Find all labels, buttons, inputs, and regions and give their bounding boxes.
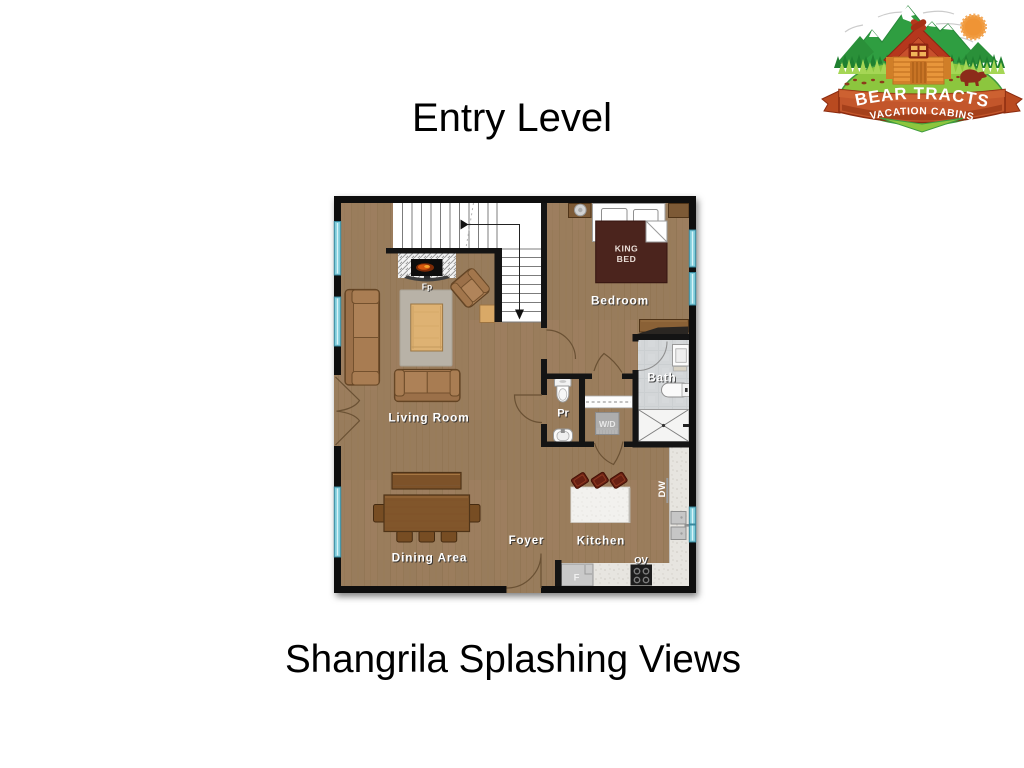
svg-text:Dining Area: Dining Area — [392, 551, 468, 565]
svg-text:Bath: Bath — [647, 373, 676, 385]
svg-text:OV: OV — [634, 556, 648, 567]
svg-text:Pr: Pr — [557, 408, 569, 420]
svg-text:Bedroom: Bedroom — [591, 294, 649, 308]
svg-text:W/D: W/D — [599, 419, 616, 429]
svg-text:F: F — [574, 573, 580, 584]
svg-text:DW: DW — [657, 481, 668, 498]
svg-text:KING: KING — [615, 244, 638, 254]
svg-text:BED: BED — [617, 254, 637, 264]
svg-text:Foyer: Foyer — [509, 535, 545, 547]
svg-text:Living Room: Living Room — [388, 411, 469, 425]
svg-text:Fp: Fp — [422, 282, 432, 292]
svg-text:Kitchen: Kitchen — [577, 536, 625, 548]
